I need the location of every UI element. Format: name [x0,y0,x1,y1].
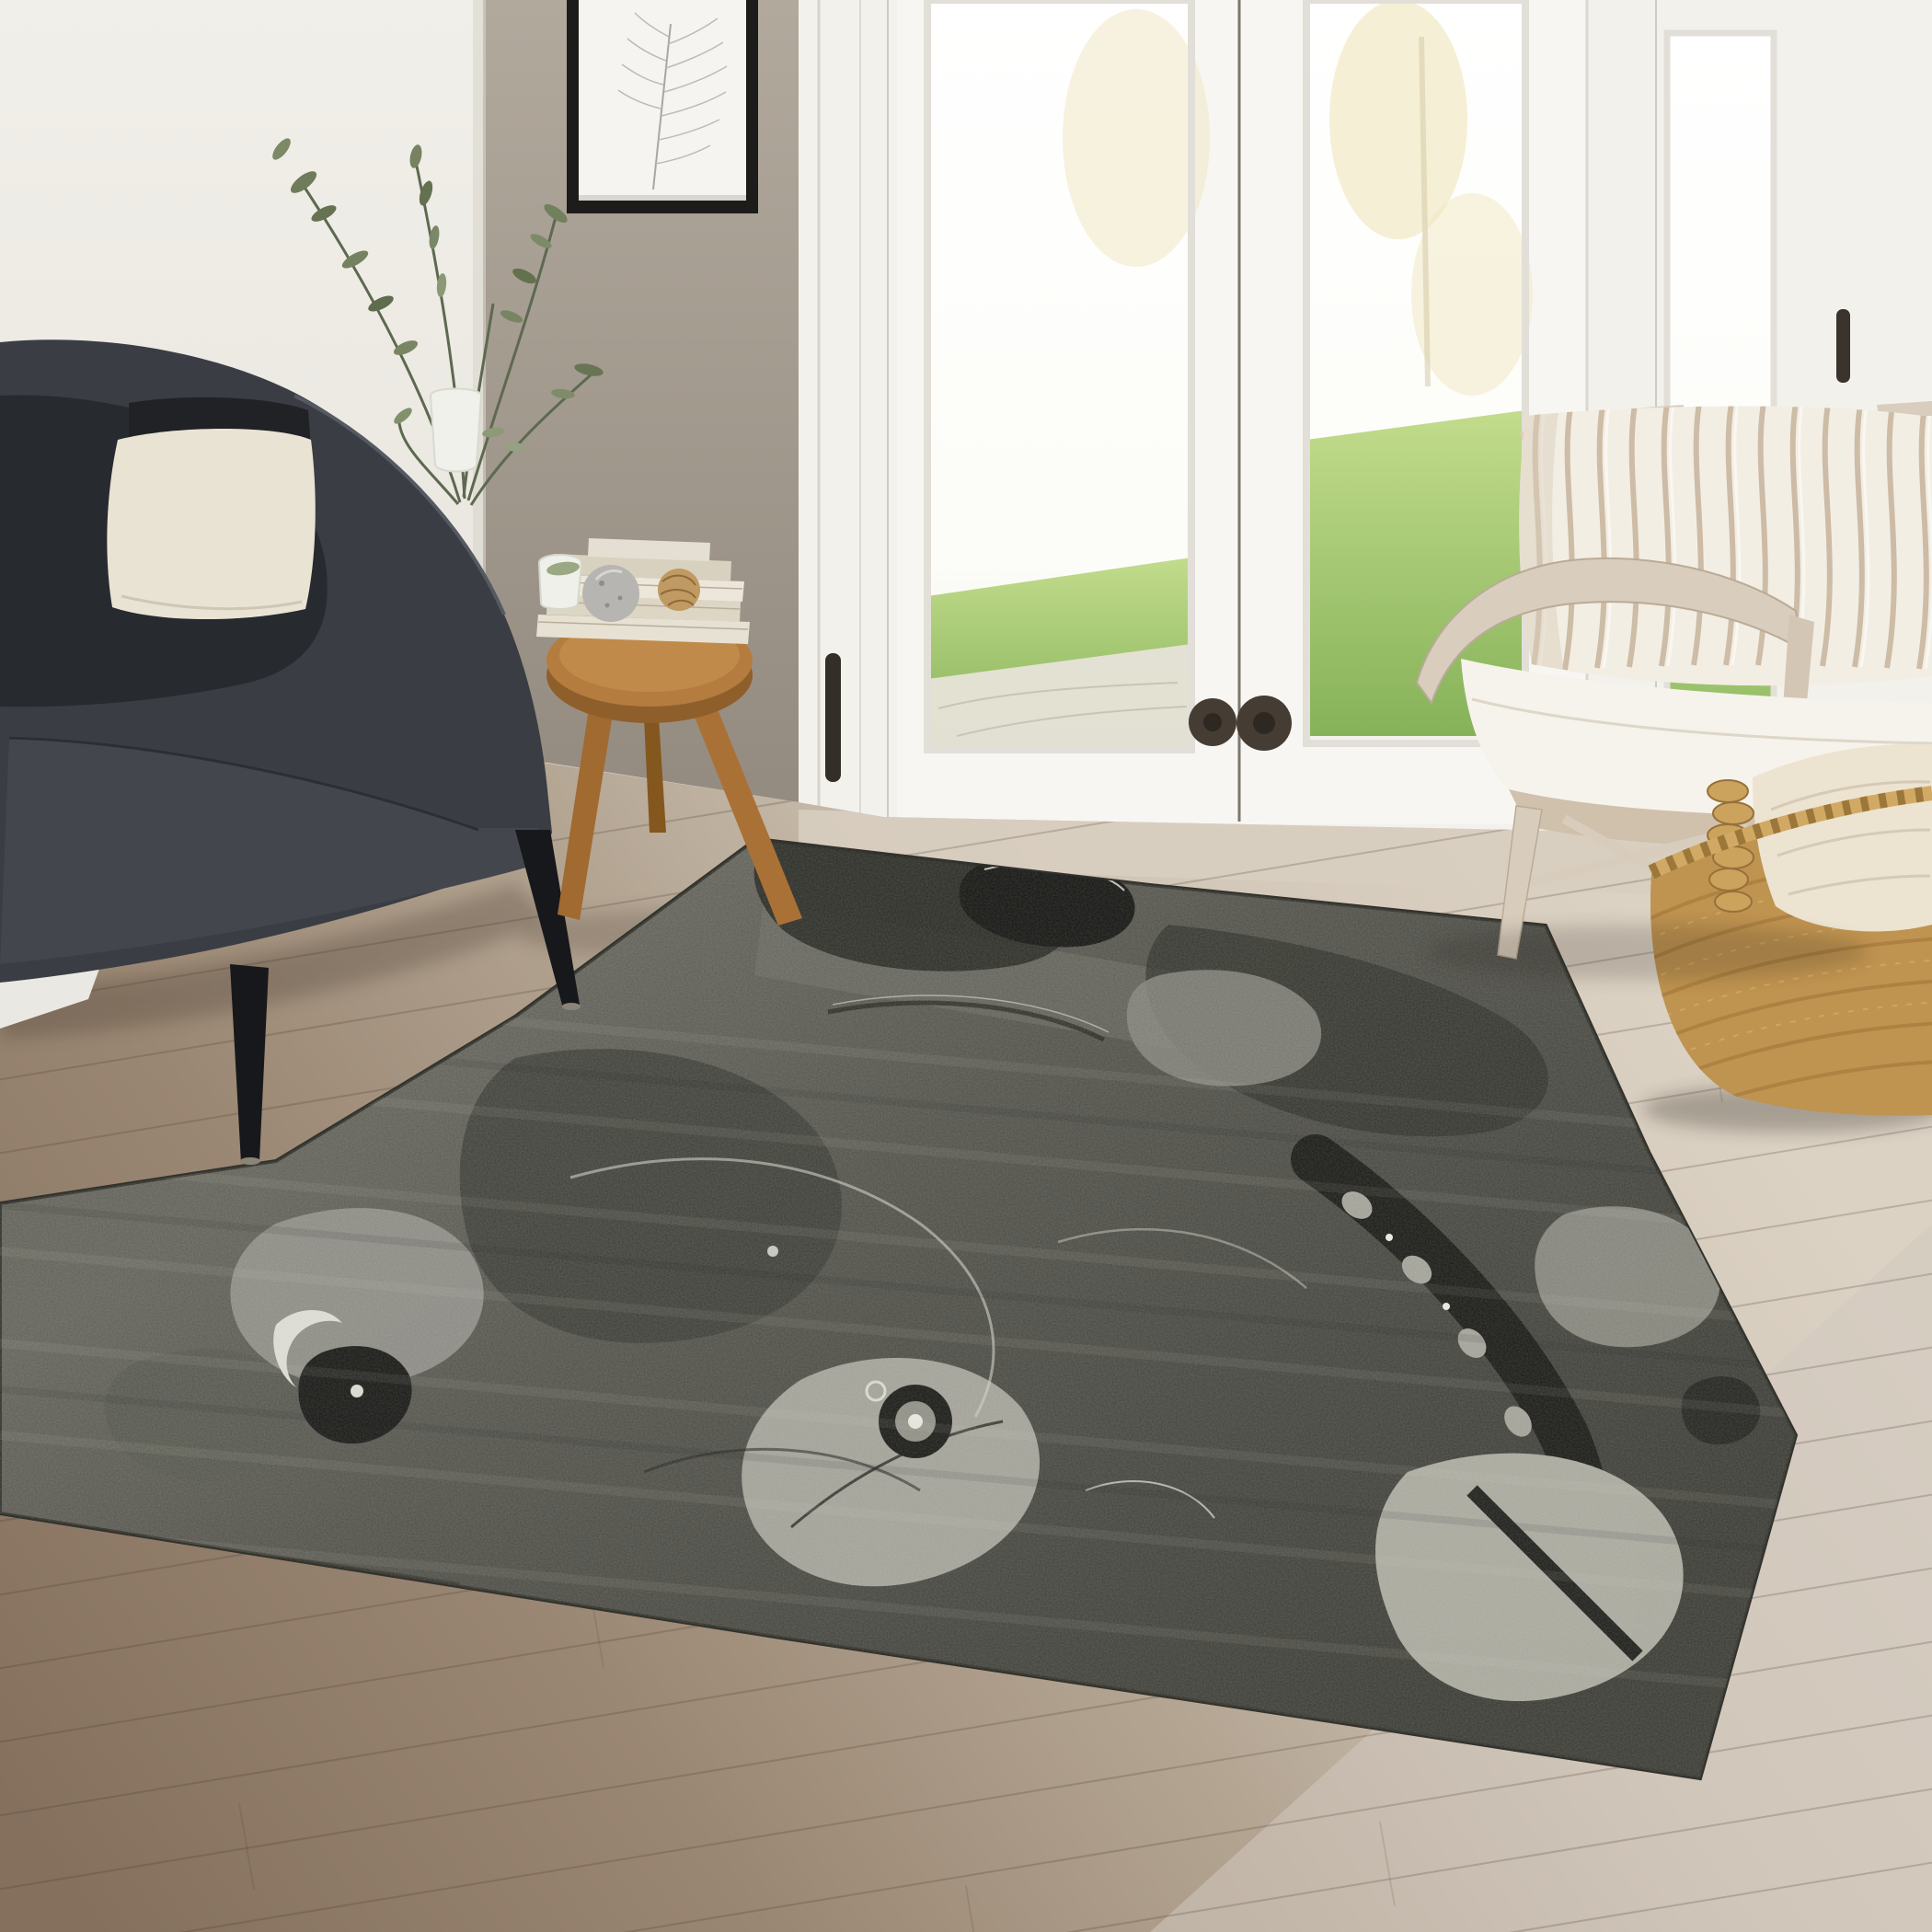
sidelight-handle [1836,309,1850,383]
plant-vase [431,389,481,472]
scene-canvas [0,0,1932,1932]
framed-art [567,0,758,213]
accent-chair-shadow [1426,925,1868,980]
decor-stone-sphere [582,565,639,622]
mat-shadow [579,195,746,201]
armchair-pillow [107,429,315,619]
striped-pillow [1519,407,1932,686]
screen-door-handle [825,653,841,782]
scene [0,0,1932,1932]
